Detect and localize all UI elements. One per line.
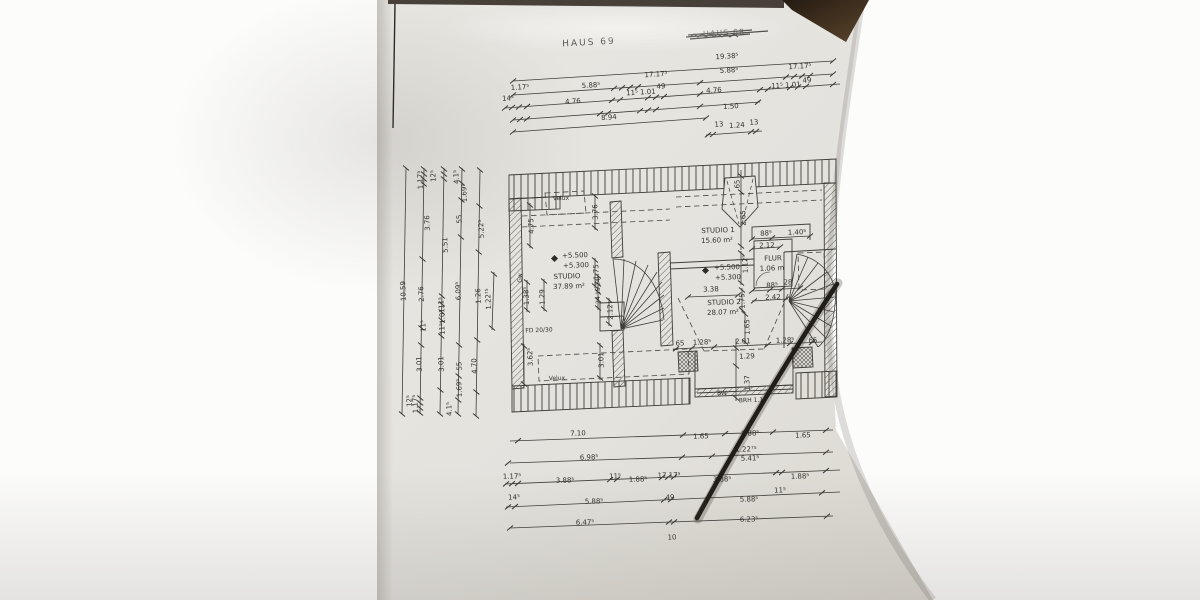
dimension-label: 65 [734, 179, 741, 188]
dimension-label: 55 [456, 214, 463, 223]
dimension-label: 5.88⁵ [740, 496, 759, 503]
dimension-label: 11⁵ [439, 323, 447, 335]
dimension-label: 1.69⁵ [461, 184, 469, 203]
dimension-label: 1.38⁵ [523, 287, 531, 306]
dimension-label: 5.88⁵ [582, 82, 601, 90]
dimension-label: 4.75 [528, 218, 536, 234]
dimension-label: 11⁵ [609, 473, 621, 480]
dimension-label: 2.01 [735, 338, 751, 346]
dimension-label: 1.65 [693, 433, 709, 440]
room-label: +5.300 [563, 262, 589, 270]
dimension-label: 1.88⁵ [791, 473, 810, 480]
dimension-label: 65 [808, 337, 817, 344]
dimension-label: 24 [596, 296, 602, 304]
dimension-label: 17.17⁵ [657, 472, 680, 480]
dimension-label: 5.22⁵ [478, 220, 486, 239]
dimension-label: 6.09⁵ [455, 282, 463, 301]
dimension-label: 2.42 [765, 294, 781, 302]
dimension-label: 1.37 [744, 375, 752, 391]
dimension-label: 3.76 [424, 215, 432, 231]
dimension-label: 6.23⁵ [740, 516, 759, 523]
dimension-label: 4.76 [565, 98, 581, 106]
dimension-label: 1.01 [439, 308, 447, 324]
dimension-label: 1.88⁵ [741, 430, 760, 437]
dimension-label: 3.62⁵ [527, 348, 535, 367]
drawing-labels: HAUS 69 HAUS 68 19.38⁵5.88⁵17.17⁵5.88⁵17… [0, 0, 1200, 600]
dimension-label: 17.17⁵ [788, 63, 811, 71]
dimension-label: 6.47⁵ [576, 519, 595, 526]
dimension-label: 5.41⁵ [741, 455, 760, 462]
dimension-label: 1.29 [539, 289, 547, 305]
dimension-label: 15 [596, 287, 602, 295]
photo-of-floor-plan: HAUS 69 HAUS 68 19.38⁵5.88⁵17.17⁵5.88⁵17… [0, 0, 1200, 600]
dimension-label: 4.1⁵ [453, 170, 461, 184]
dimension-label: 1.75 [739, 293, 747, 309]
dimension-label: 19.38⁵ [715, 53, 738, 61]
dimension-label: 1.17⁵ [412, 395, 420, 414]
dimension-label: 1.26 [475, 288, 483, 304]
room-label: 28.07 m² [707, 309, 739, 317]
dimension-label: 1.65 [744, 319, 752, 335]
dimension-label: 11⁵ 1.01 [626, 89, 656, 98]
dimension-label: 14⁵ [502, 95, 514, 103]
room-label: +5.300 [715, 274, 741, 282]
room-label: +5.500 [714, 264, 740, 272]
dimension-label: 5.88⁵ [720, 67, 739, 75]
room-label: 1.06 m [760, 265, 785, 273]
dimension-label: 5.51 [442, 237, 450, 253]
room-label: STUDIO 2 [707, 299, 741, 307]
dimension-label: 1.88⁵ [629, 476, 648, 483]
dimension-label: 1.29 [739, 353, 755, 361]
room-label: FLUR [764, 255, 782, 263]
dimension-label: 4.76 [706, 87, 722, 95]
dimension-label: 1.17⁵ [511, 84, 530, 92]
dimension-label: 65 [675, 340, 684, 347]
dimension-label: 10.59 [400, 281, 408, 301]
room-label: BRH 1.1 [739, 398, 763, 405]
dimension-label: 13 [714, 121, 723, 129]
dimension-label: 49 [802, 77, 811, 85]
dimension-label: 3.01 [416, 356, 424, 372]
room-label: 15.60 m² [701, 237, 733, 245]
dimension-label: 1.65 [795, 432, 811, 439]
dimension-label: 2.76 [418, 286, 426, 302]
dimension-label: 3.01 [598, 352, 606, 368]
dimension-label: 88⁵ [760, 230, 772, 237]
room-label: BW [717, 391, 727, 397]
dimension-label: 11⁵ [420, 320, 428, 332]
room-label: STUDIO [553, 273, 580, 281]
dimension-label: 1.22⁷⁵ [485, 288, 493, 309]
room-label: STUDIO 1 [701, 227, 735, 235]
dimension-label: 3.38 [703, 286, 719, 294]
dimension-label: 5.88⁵ [585, 498, 604, 505]
dimension-label: 28 [783, 279, 792, 286]
dimension-label: 1.17⁵ [417, 171, 425, 190]
dimension-label: 49 [665, 494, 674, 501]
dimension-label: 3.76 [592, 204, 600, 220]
dimension-label: 49 [656, 83, 665, 91]
dimension-label: 3.01 [438, 356, 446, 372]
dimension-label: 1.22⁷⁵ [735, 446, 756, 454]
dimension-label: 13 [749, 119, 758, 127]
dimension-label: 1.40⁵ [788, 229, 807, 237]
room-label: FD 20/30 [525, 328, 552, 335]
dimension-label: 88⁵ [766, 282, 778, 289]
dimension-label: 1.12⁵ [742, 255, 750, 274]
dimension-label: 4.70 [471, 358, 479, 374]
dimension-label: 1.69⁵ [456, 379, 464, 398]
dimension-label: 6.98⁵ [580, 454, 599, 461]
room-label: +5.500 [562, 252, 588, 260]
dimension-label: 24 [596, 278, 602, 286]
dimension-label: 4.1⁵ [446, 402, 454, 416]
dimension-label: 12⁵ [430, 170, 438, 182]
room-label: Gw [518, 273, 524, 283]
dimension-label: 3.88⁵ [556, 477, 575, 484]
dimension-label: 2.12 [759, 242, 775, 250]
crossed-out-title: HAUS 68 [703, 27, 746, 38]
dimension-label: 2.12 [607, 304, 615, 320]
drawing-title: HAUS 69 [562, 37, 616, 50]
dimension-label: 1.17⁵ [503, 473, 522, 480]
dimension-label: 1.24 [729, 122, 745, 130]
dimension-label: 1.50 [723, 103, 739, 111]
dimension-label: 1.28⁵ [693, 339, 712, 347]
room-label: Velux [549, 376, 566, 383]
room-label: 37.89 m² [553, 283, 585, 291]
dimension-label: 11⁵ [774, 487, 786, 494]
dimension-label: 14⁵ [508, 494, 520, 501]
dimension-label: 8.94 [601, 114, 617, 122]
dimension-label: 2.65 [740, 210, 748, 226]
dimension-label: 1.28⁵ [776, 337, 795, 345]
dimension-label: 11⁵ 1.01 [771, 82, 801, 91]
dimension-label: 10 [667, 534, 676, 541]
room-label: Velux [553, 196, 570, 203]
dimension-label: 3.88⁵ [713, 476, 732, 483]
dimension-label: 17.17⁵ [644, 71, 667, 79]
dimension-label: 7.10 [570, 430, 586, 437]
dimension-label: 55 [456, 361, 463, 370]
